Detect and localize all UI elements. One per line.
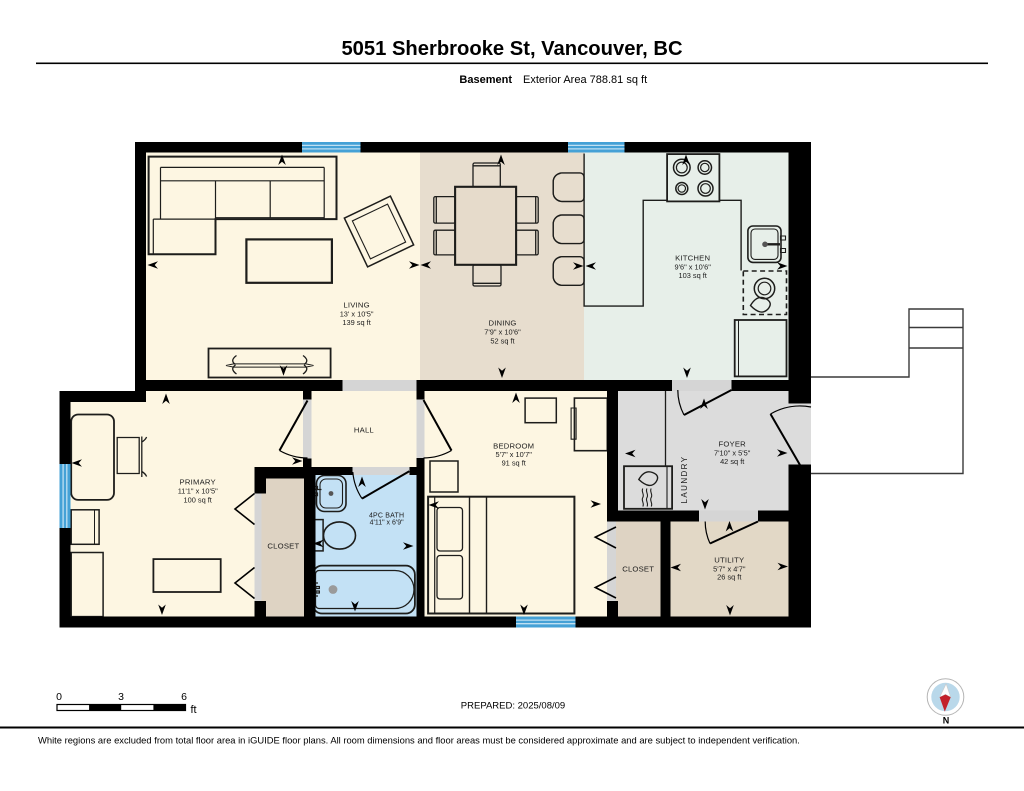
svg-text:Basement: Basement: [459, 74, 512, 86]
svg-text:3: 3: [118, 691, 124, 703]
svg-text:42 sq ft: 42 sq ft: [720, 457, 744, 466]
svg-text:White regions are excluded fro: White regions are excluded from total fl…: [38, 735, 800, 746]
svg-text:52 sq ft: 52 sq ft: [490, 337, 514, 346]
svg-text:N: N: [943, 716, 950, 726]
svg-text:100 sq ft: 100 sq ft: [184, 495, 212, 504]
svg-text:103 sq ft: 103 sq ft: [679, 271, 707, 280]
svg-text:91 sq ft: 91 sq ft: [502, 458, 526, 467]
svg-text:11'1" x 10'5": 11'1" x 10'5": [178, 487, 218, 496]
svg-text:5051 Sherbrooke St, Vancouver,: 5051 Sherbrooke St, Vancouver, BC: [341, 38, 683, 60]
svg-text:7'9" x 10'6": 7'9" x 10'6": [484, 328, 521, 337]
svg-text:6: 6: [181, 691, 187, 703]
svg-text:DINING: DINING: [488, 319, 516, 328]
svg-text:CLOSET: CLOSET: [622, 564, 654, 573]
svg-text:PREPARED: 2025/08/09: PREPARED: 2025/08/09: [461, 701, 565, 712]
svg-text:0: 0: [56, 691, 62, 703]
svg-text:4PC BATH: 4PC BATH: [369, 512, 404, 519]
svg-text:PRIMARY: PRIMARY: [180, 477, 216, 486]
svg-text:CLOSET: CLOSET: [267, 542, 299, 551]
svg-text:KITCHEN: KITCHEN: [675, 253, 710, 262]
svg-text:Exterior Area 788.81 sq ft: Exterior Area 788.81 sq ft: [523, 74, 647, 86]
svg-text:139 sq ft: 139 sq ft: [342, 318, 370, 327]
svg-text:HALL: HALL: [354, 425, 375, 434]
svg-text:ft: ft: [191, 704, 197, 716]
svg-text:26 sq ft: 26 sq ft: [717, 573, 741, 582]
svg-text:FOYER: FOYER: [718, 440, 746, 449]
svg-text:LIVING: LIVING: [343, 300, 369, 309]
svg-text:UTILITY: UTILITY: [714, 556, 744, 565]
svg-text:4'11" x 6'9": 4'11" x 6'9": [370, 520, 404, 527]
svg-text:LAUNDRY: LAUNDRY: [680, 456, 689, 504]
